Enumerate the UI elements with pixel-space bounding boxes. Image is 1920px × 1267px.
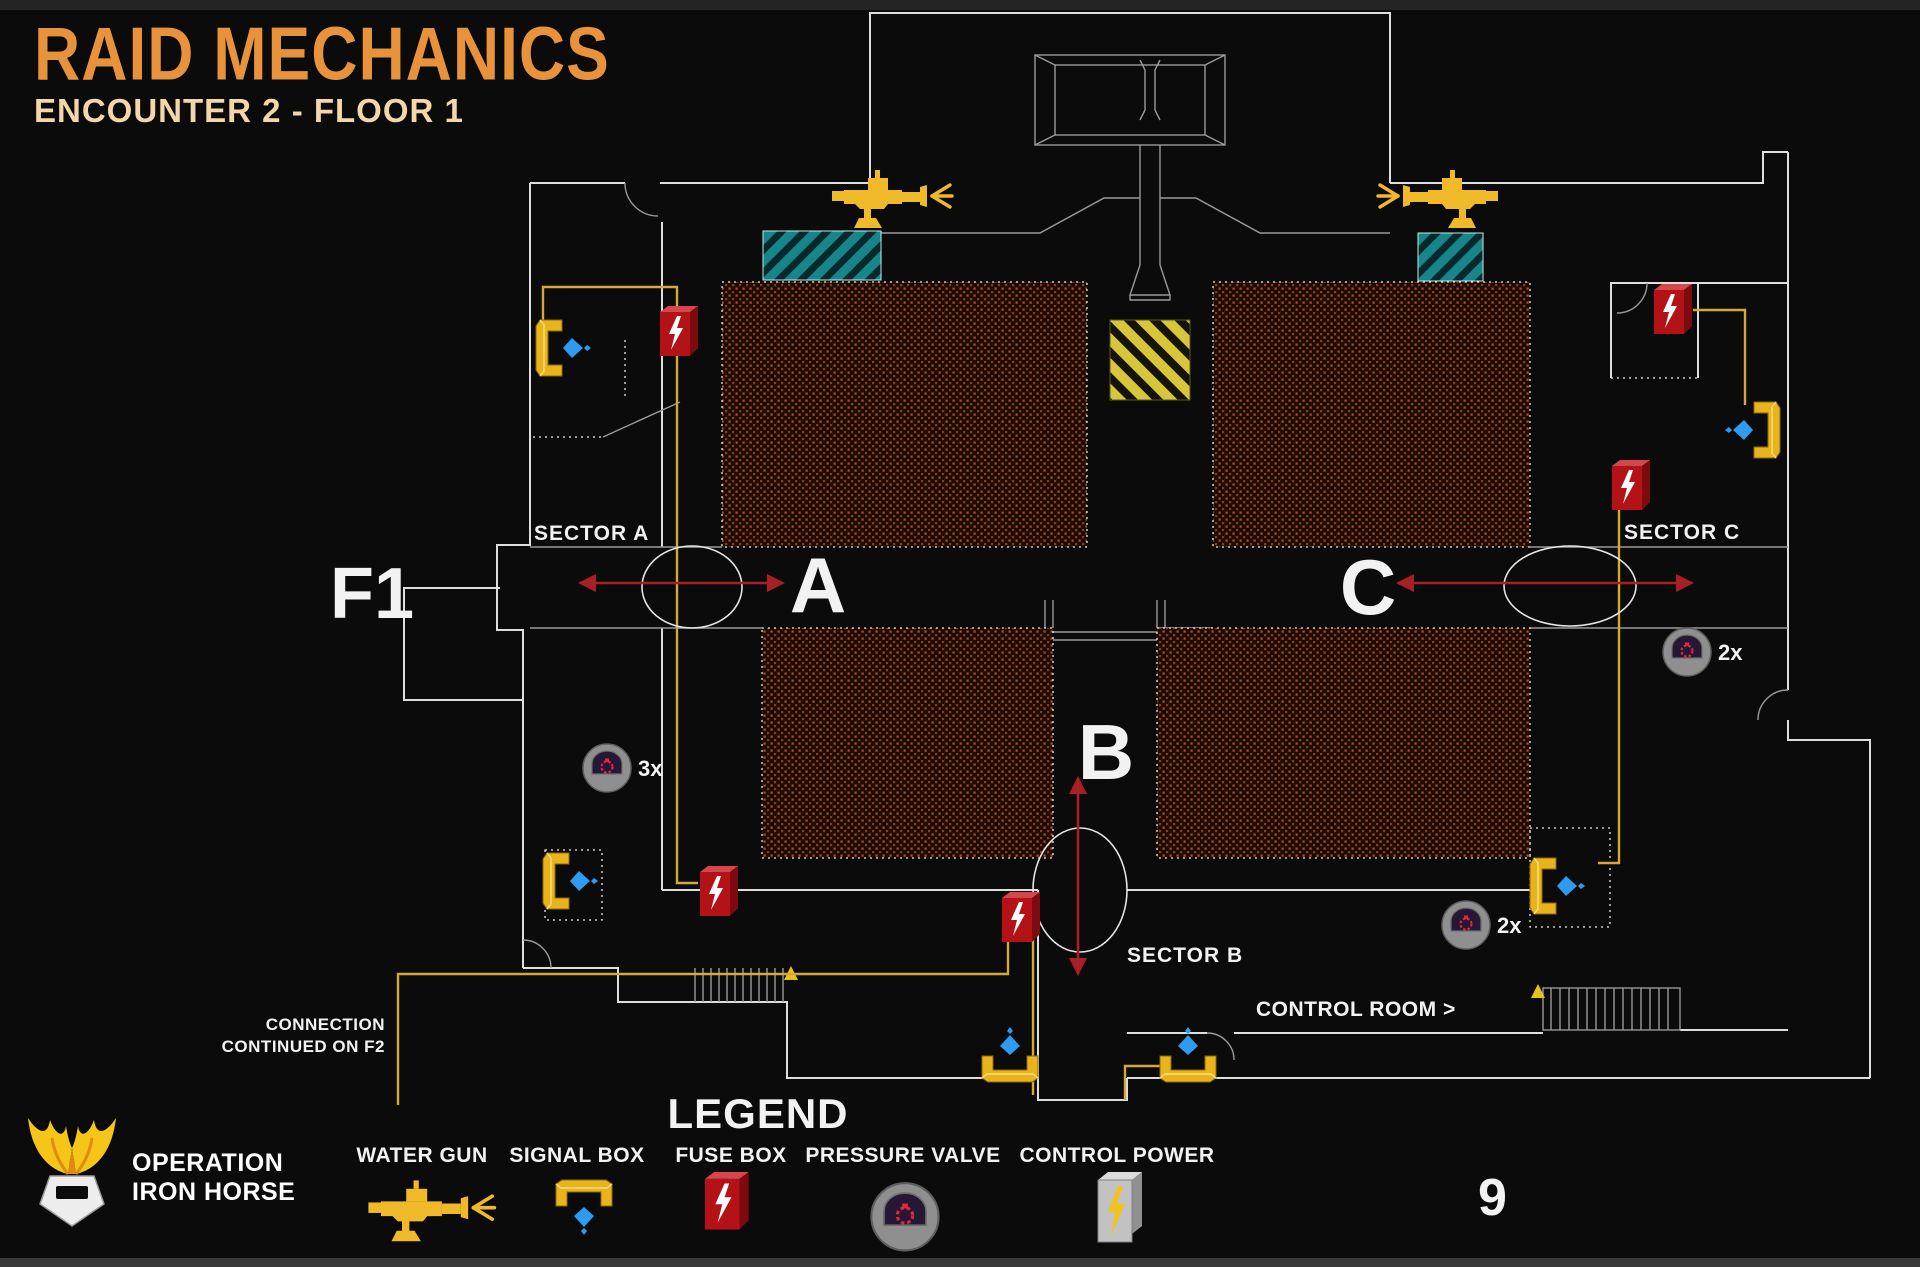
signal-box-icon bbox=[543, 853, 598, 909]
control-room-label: CONTROL ROOM > bbox=[1256, 998, 1456, 1021]
floor-label: F1 bbox=[330, 554, 414, 634]
signal-box-icon bbox=[1725, 402, 1780, 458]
iron-horse-statue bbox=[1035, 55, 1225, 300]
legend-label-fuse-box: FUSE BOX bbox=[675, 1144, 786, 1167]
fuse-box-icon bbox=[1002, 892, 1040, 942]
sector-a-letter: A bbox=[790, 541, 846, 629]
signal-box-icon bbox=[556, 1180, 612, 1235]
page-header: RAID MECHANICS ENCOUNTER 2 - FLOOR 1 bbox=[34, 16, 610, 127]
stairs-control-room bbox=[1551, 988, 1668, 1030]
sector-b-label: SECTOR B bbox=[1127, 944, 1243, 967]
sector-c-arrow bbox=[1396, 574, 1694, 592]
sector-c-zone-circle bbox=[1504, 546, 1636, 626]
sector-a-label: SECTOR A bbox=[534, 522, 649, 545]
fuse-box-icon bbox=[1654, 284, 1692, 334]
connection-note-line1: CONNECTION bbox=[266, 1015, 385, 1034]
legend-label-water-gun: WATER GUN bbox=[356, 1144, 487, 1167]
sector-b-arrow bbox=[1069, 776, 1087, 976]
sector-b-zone-circle bbox=[1033, 828, 1127, 952]
sector-c-letter: C bbox=[1340, 543, 1396, 631]
control-power-icon bbox=[1098, 1172, 1142, 1242]
sector-a-zone-circle bbox=[642, 546, 742, 628]
page-title: RAID MECHANICS bbox=[34, 16, 610, 92]
operation-iron-horse-logo: OPERATION IRON HORSE bbox=[20, 1104, 295, 1252]
logo-line1: OPERATION bbox=[132, 1149, 295, 1178]
wall-lines bbox=[404, 13, 1870, 1100]
connection-note-line2: CONTINUED ON F2 bbox=[222, 1037, 385, 1056]
page-number: 9 bbox=[1478, 1168, 1507, 1228]
legend-label-signal-box: SIGNAL BOX bbox=[509, 1144, 644, 1167]
pressure-valve-icon bbox=[1442, 901, 1490, 949]
raid-guide-slide: RAID MECHANICS ENCOUNTER 2 - FLOOR 1 bbox=[0, 0, 1920, 1267]
valve-count-label: 2x bbox=[1718, 640, 1743, 665]
valve-count-label: 2x bbox=[1497, 913, 1522, 938]
water-gun-icon bbox=[832, 170, 952, 228]
logo-line2: IRON HORSE bbox=[132, 1178, 295, 1207]
water-gun-markers bbox=[832, 170, 1498, 228]
slide-bottom-edge bbox=[0, 1258, 1920, 1267]
teal-pad-right bbox=[1418, 233, 1483, 281]
fuse-box-icon bbox=[1612, 460, 1650, 510]
legend-label-pressure-valve: PRESSURE VALVE bbox=[805, 1144, 1000, 1167]
water-gun-icon bbox=[1378, 170, 1498, 228]
fuse-box-icon bbox=[660, 306, 698, 356]
pressure-valve-icon bbox=[871, 1183, 938, 1250]
legend-label-control-power: CONTROL POWER bbox=[1019, 1144, 1214, 1167]
valve-count-label: 3x bbox=[638, 756, 663, 781]
floor-map: 3x 2x 2x F1 A B C SECTOR A SECTOR B SECT… bbox=[0, 0, 1920, 1267]
water-gun-icon bbox=[368, 1180, 494, 1241]
page-subtitle: ENCOUNTER 2 - FLOOR 1 bbox=[34, 94, 610, 127]
fuse-box-icon bbox=[700, 866, 738, 916]
signal-box-icon bbox=[536, 320, 591, 376]
legend-title: LEGEND bbox=[667, 1090, 848, 1137]
sector-b-letter: B bbox=[1078, 708, 1134, 796]
signal-box-icon bbox=[1530, 858, 1585, 914]
signal-box-icon bbox=[1160, 1027, 1216, 1082]
pressure-valve-icon bbox=[1663, 628, 1711, 676]
eagle-mask-icon bbox=[20, 1104, 124, 1252]
pressure-valve-icon bbox=[583, 744, 631, 792]
teal-pad-left bbox=[763, 231, 881, 280]
sector-a-arrow bbox=[578, 574, 785, 592]
legend: LEGEND WATER GUN SIGNAL BOX FUSE BOX PRE… bbox=[356, 1090, 1214, 1250]
sector-c-label: SECTOR C bbox=[1624, 521, 1740, 544]
fuse-box-icon bbox=[705, 1172, 749, 1230]
signal-box-icon bbox=[982, 1027, 1038, 1082]
caution-pad bbox=[1110, 320, 1190, 400]
